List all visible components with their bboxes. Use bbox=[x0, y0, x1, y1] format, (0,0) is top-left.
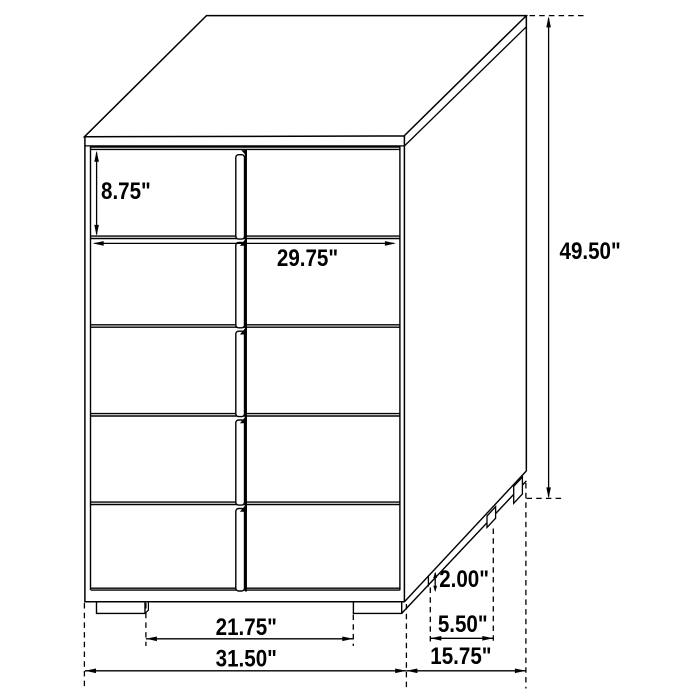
svg-text:15.75": 15.75" bbox=[430, 642, 491, 669]
svg-text:8.75": 8.75" bbox=[101, 177, 151, 204]
svg-text:29.75": 29.75" bbox=[277, 244, 338, 271]
svg-text:31.50": 31.50" bbox=[216, 645, 277, 672]
svg-text:49.50": 49.50" bbox=[560, 237, 621, 264]
svg-text:2.00": 2.00" bbox=[439, 565, 489, 592]
svg-text:21.75": 21.75" bbox=[216, 613, 277, 640]
svg-text:5.50": 5.50" bbox=[438, 611, 488, 638]
